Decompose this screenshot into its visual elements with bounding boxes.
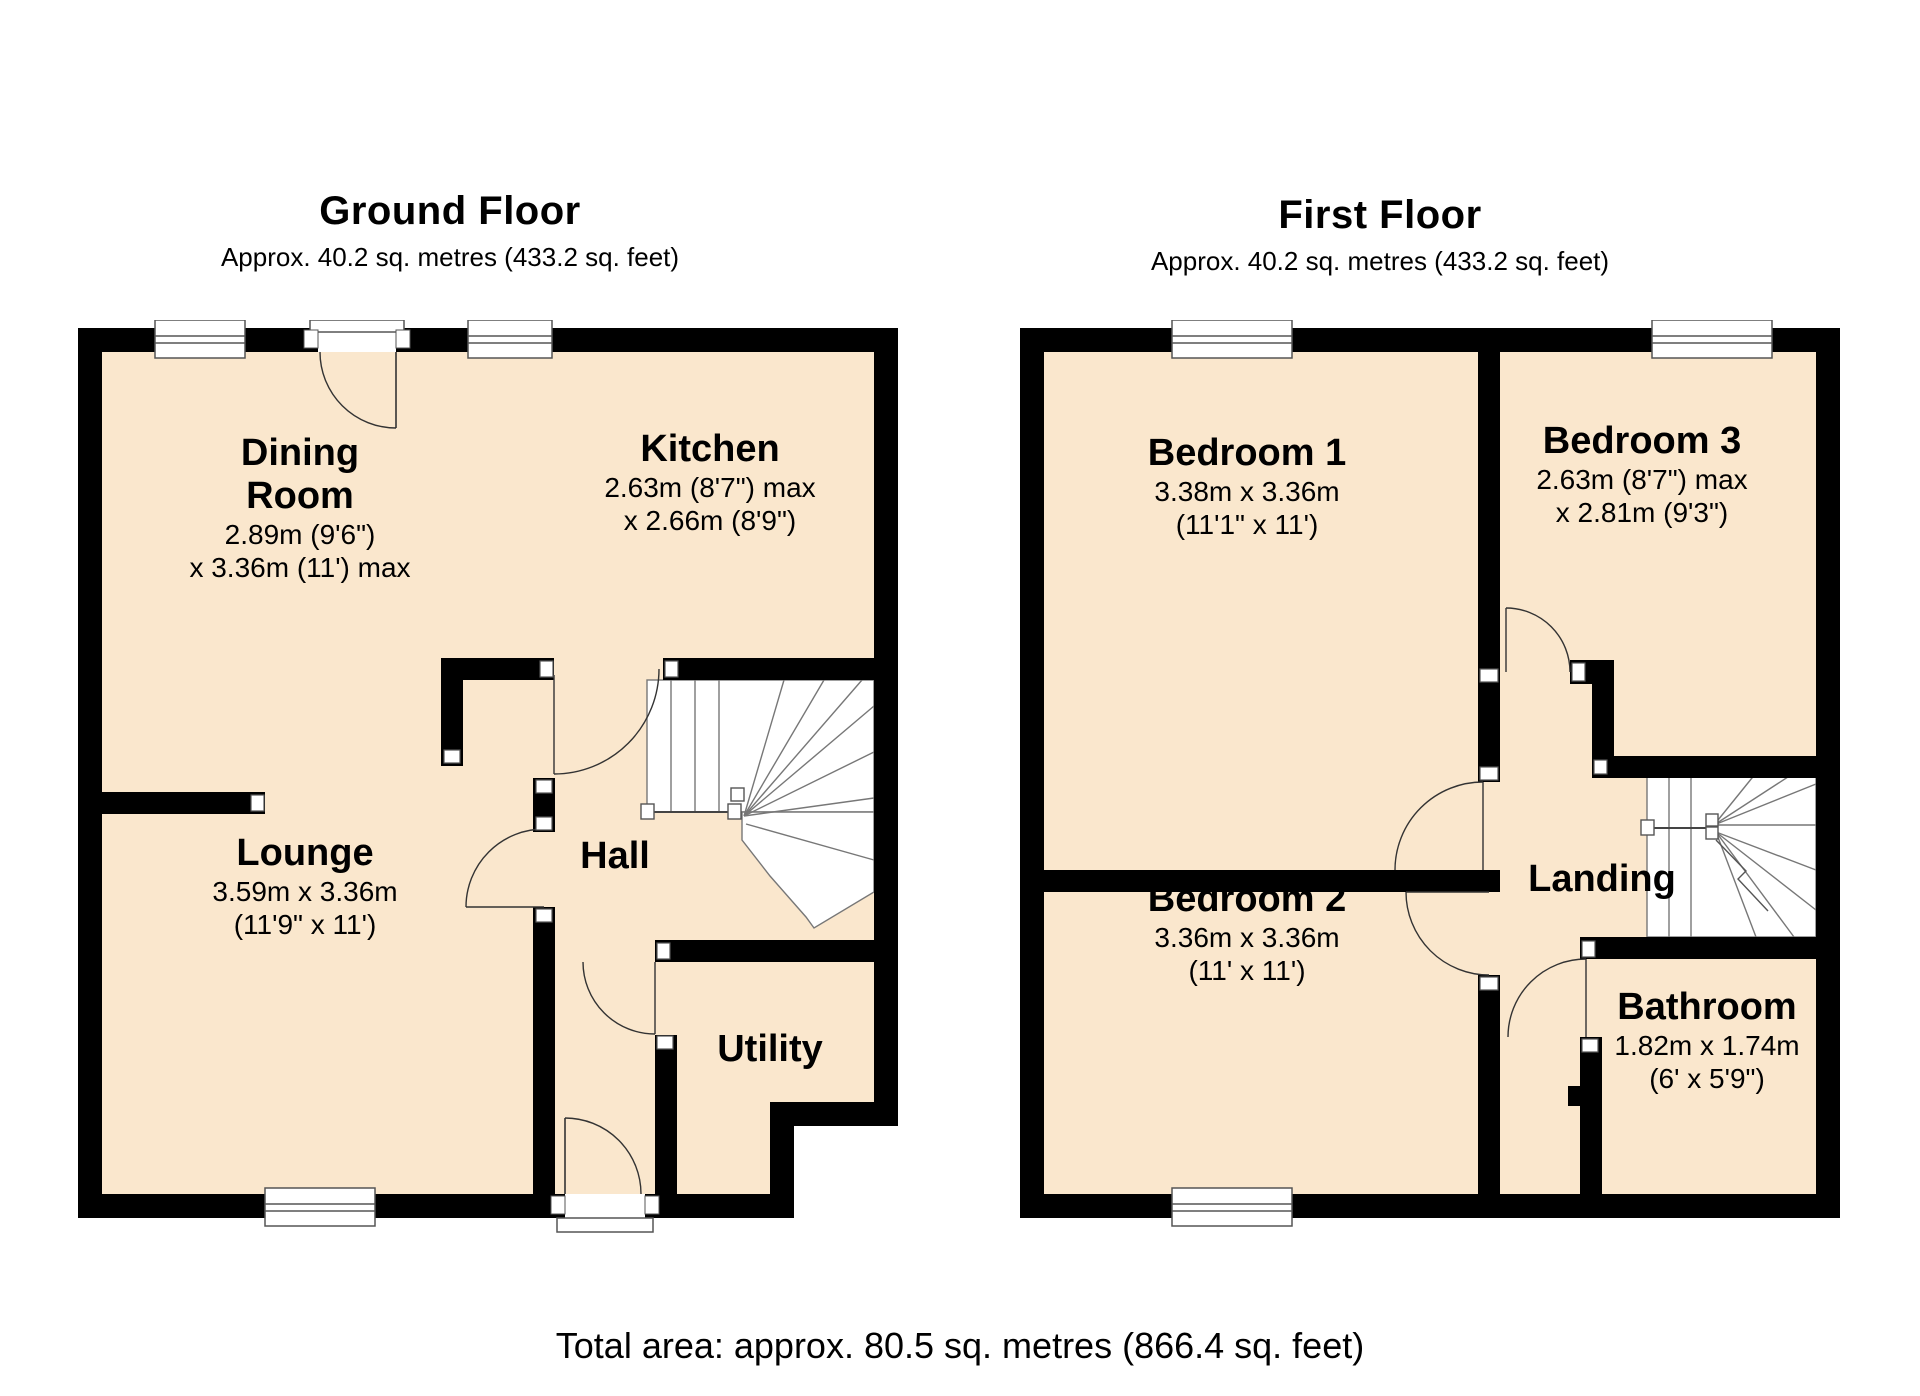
room-dimensions: (11' x 11') [1077, 954, 1417, 987]
ground-floor-plan: Dining Room 2.89m (9'6") x 3.36m (11') m… [70, 320, 910, 1235]
room-label-bathroom: Bathroom 1.82m x 1.74m (6' x 5'9") [1577, 986, 1837, 1095]
ground-floor-title: Ground Floor [150, 190, 750, 232]
room-name: Landing [1492, 858, 1712, 901]
room-dimensions: x 3.36m (11') max [130, 551, 470, 584]
room-dimensions: 2.89m (9'6") [130, 518, 470, 551]
room-dimensions: 2.63m (8'7") max [1472, 463, 1812, 496]
room-dimensions: x 2.66m (8'9") [540, 504, 880, 537]
room-name: Dining [130, 432, 470, 475]
first-floor-subtitle: Approx. 40.2 sq. metres (433.2 sq. feet) [1080, 247, 1680, 276]
room-dimensions: 3.59m x 3.36m [135, 875, 475, 908]
room-label-lounge: Lounge 3.59m x 3.36m (11'9" x 11') [135, 832, 475, 941]
room-name: Utility [670, 1028, 870, 1071]
room-label-bedroom-3: Bedroom 3 2.63m (8'7") max x 2.81m (9'3"… [1472, 420, 1812, 529]
window-symbol [468, 320, 552, 358]
ground-floor-subtitle: Approx. 40.2 sq. metres (433.2 sq. feet) [150, 243, 750, 272]
room-label-hall: Hall [515, 835, 715, 878]
first-floor-title: First Floor [1080, 194, 1680, 236]
room-dimensions: 3.38m x 3.36m [1077, 475, 1417, 508]
room-dimensions: (11'9" x 11') [135, 908, 475, 941]
room-name: Lounge [135, 832, 475, 875]
first-floor-plan: Bedroom 1 3.38m x 3.36m (11'1" x 11') Be… [1012, 320, 1852, 1235]
room-label-landing: Landing [1492, 858, 1712, 901]
window-symbol [265, 1188, 375, 1226]
room-dimensions: x 2.81m (9'3") [1472, 496, 1812, 529]
room-name: Bedroom 3 [1472, 420, 1812, 463]
room-dimensions: 3.36m x 3.36m [1077, 921, 1417, 954]
window-symbol [1172, 320, 1292, 358]
room-name: Bathroom [1577, 986, 1837, 1029]
window-symbol [155, 320, 245, 358]
room-name: Kitchen [540, 428, 880, 471]
window-symbol [1172, 1188, 1292, 1226]
room-dimensions: 2.63m (8'7") max [540, 471, 880, 504]
room-label-utility: Utility [670, 1028, 870, 1071]
staircase [1641, 773, 1816, 937]
room-name: Bedroom 2 [1077, 878, 1417, 921]
external-notch [794, 1126, 898, 1218]
window-symbol [1652, 320, 1772, 358]
room-dimensions: (11'1" x 11') [1077, 508, 1417, 541]
room-label-kitchen: Kitchen 2.63m (8'7") max x 2.66m (8'9") [540, 428, 880, 537]
room-name: Bedroom 1 [1077, 432, 1417, 475]
room-label-bedroom-1: Bedroom 1 3.38m x 3.36m (11'1" x 11') [1077, 432, 1417, 541]
room-name: Room [130, 475, 470, 518]
room-label-bedroom-2: Bedroom 2 3.36m x 3.36m (11' x 11') [1077, 878, 1417, 987]
room-dimensions: 1.82m x 1.74m [1577, 1029, 1837, 1062]
total-area-text: Total area: approx. 80.5 sq. metres (866… [460, 1326, 1460, 1366]
room-dimensions: (6' x 5'9") [1577, 1062, 1837, 1095]
room-label-dining-room: Dining Room 2.89m (9'6") x 3.36m (11') m… [130, 432, 470, 584]
room-name: Hall [515, 835, 715, 878]
